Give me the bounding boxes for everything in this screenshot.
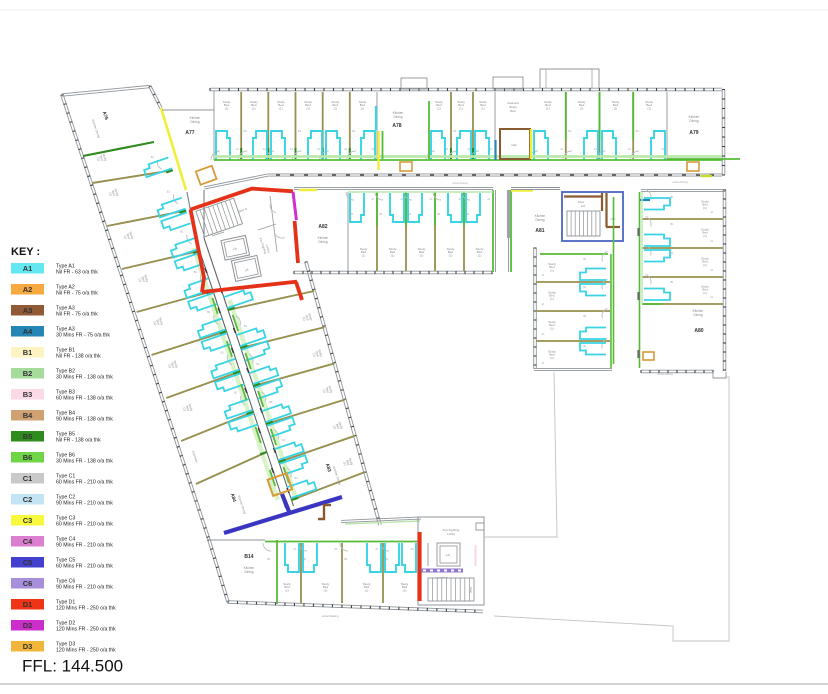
- svg-text:120 Mins FR - 250 o/a thk: 120 Mins FR - 250 o/a thk: [56, 648, 116, 654]
- svg-text:B1: B1: [583, 314, 587, 318]
- svg-text:(1): (1): [580, 106, 584, 110]
- svg-text:B1: B1: [282, 438, 286, 442]
- svg-text:B1: B1: [466, 212, 470, 216]
- svg-text:A4: A4: [23, 327, 33, 336]
- svg-text:B1: B1: [269, 400, 273, 404]
- svg-text:Dining: Dining: [693, 313, 702, 317]
- svg-text:30 Mins FR - 75 o/a thk: 30 Mins FR - 75 o/a thk: [56, 333, 110, 339]
- svg-text:(1): (1): [365, 588, 369, 592]
- svg-text:123: 123: [581, 205, 586, 208]
- svg-text:Lobby: Lobby: [447, 532, 456, 536]
- svg-text:60 Mins FR - 210 o/a thk: 60 Mins FR - 210 o/a thk: [56, 480, 113, 486]
- svg-text:A1: A1: [293, 547, 297, 551]
- svg-text:A80: A80: [694, 328, 703, 334]
- svg-text:B1: B1: [221, 350, 225, 354]
- svg-text:B1: B1: [350, 212, 354, 216]
- svg-text:(1): (1): [324, 588, 328, 592]
- svg-text:Dining: Dining: [393, 115, 402, 119]
- svg-text:B1: B1: [385, 557, 389, 561]
- svg-text:(1): (1): [420, 253, 424, 257]
- svg-text:A1: A1: [710, 239, 714, 243]
- svg-text:A1: A1: [489, 147, 493, 151]
- svg-text:(1): (1): [703, 263, 707, 267]
- svg-text:(1): (1): [225, 106, 229, 110]
- svg-text:A81: A81: [535, 228, 544, 234]
- svg-text:A1: A1: [487, 197, 491, 201]
- svg-text:B1: B1: [636, 129, 640, 133]
- svg-text:B2: B2: [23, 369, 33, 378]
- svg-text:(1): (1): [391, 253, 395, 257]
- svg-text:A1: A1: [410, 547, 414, 551]
- svg-text:A1: A1: [371, 197, 375, 201]
- svg-text:(1): (1): [306, 106, 310, 110]
- svg-text:90 Mins FR - 138 o/a thk: 90 Mins FR - 138 o/a thk: [56, 417, 113, 423]
- svg-text:Dining: Dining: [689, 119, 698, 123]
- svg-text:(1): (1): [252, 106, 256, 110]
- svg-text:constellation: constellation: [436, 576, 449, 579]
- svg-text:(1): (1): [285, 588, 289, 592]
- svg-text:KEY :: KEY :: [11, 246, 40, 258]
- svg-text:Nil FR - 75 o/a thk: Nil FR - 75 o/a thk: [56, 312, 98, 318]
- svg-text:A1: A1: [541, 332, 545, 336]
- svg-text:A1: A1: [263, 147, 267, 151]
- svg-text:(1): (1): [703, 291, 707, 295]
- svg-text:120 Mins FR - 250 o/a thk: 120 Mins FR - 250 o/a thk: [56, 606, 116, 612]
- svg-text:(1): (1): [362, 253, 366, 257]
- svg-text:A1: A1: [375, 547, 379, 551]
- svg-text:(1): (1): [459, 106, 463, 110]
- svg-text:(1): (1): [550, 297, 554, 301]
- svg-text:D1: D1: [23, 600, 33, 609]
- svg-text:(1): (1): [647, 106, 651, 110]
- svg-text:B1: B1: [583, 257, 587, 261]
- svg-text:B1: B1: [257, 362, 261, 366]
- svg-text:Nil FR - 75 o/a thk: Nil FR - 75 o/a thk: [56, 291, 98, 297]
- svg-text:B1: B1: [207, 310, 211, 314]
- svg-text:verbal drawing: verbal drawing: [672, 181, 688, 184]
- svg-text:verbal drawing: verbal drawing: [657, 373, 673, 376]
- svg-text:B1: B1: [234, 391, 238, 395]
- svg-text:60 Mins FR - 210 o/a thk: 60 Mins FR - 210 o/a thk: [56, 564, 113, 570]
- svg-text:A1: A1: [317, 147, 321, 151]
- svg-text:B1: B1: [295, 476, 299, 480]
- svg-text:A1: A1: [541, 302, 545, 306]
- svg-text:60 Mins FR - 138 o/a thk: 60 Mins FR - 138 o/a thk: [56, 396, 113, 402]
- svg-text:90 Mins FR - 210 o/a thk: 90 Mins FR - 210 o/a thk: [56, 501, 113, 507]
- svg-text:B1: B1: [244, 129, 248, 133]
- svg-text:(1): (1): [550, 268, 554, 272]
- svg-text:C3: C3: [23, 516, 33, 525]
- svg-text:(1): (1): [703, 234, 707, 238]
- svg-text:B1: B1: [180, 230, 184, 234]
- svg-text:(1): (1): [478, 253, 482, 257]
- svg-text:B1: B1: [670, 280, 674, 284]
- svg-text:C5: C5: [23, 558, 33, 567]
- svg-text:verbal drawing: verbal drawing: [322, 614, 339, 618]
- svg-text:Dining: Dining: [318, 240, 327, 244]
- svg-text:B1: B1: [23, 348, 33, 357]
- svg-text:B1: B1: [670, 251, 674, 255]
- svg-text:A77: A77: [185, 130, 194, 136]
- svg-text:B1: B1: [408, 212, 412, 216]
- svg-text:A1: A1: [710, 268, 714, 272]
- svg-text:B1: B1: [670, 195, 674, 199]
- svg-text:B6: B6: [23, 453, 33, 462]
- svg-text:30 Mins FR - 138 o/a thk: 30 Mins FR - 138 o/a thk: [56, 375, 113, 381]
- svg-text:Lift: Lift: [446, 553, 450, 557]
- svg-text:B1: B1: [244, 324, 248, 328]
- svg-text:(1): (1): [550, 356, 554, 360]
- svg-text:A1: A1: [290, 147, 294, 151]
- svg-text:B3: B3: [23, 390, 33, 399]
- svg-text:B1: B1: [267, 557, 271, 561]
- svg-text:FFL: 144.500: FFL: 144.500: [22, 657, 123, 676]
- svg-text:A79: A79: [689, 130, 698, 136]
- svg-text:B1: B1: [437, 212, 441, 216]
- svg-text:B1: B1: [379, 212, 383, 216]
- svg-text:90 Mins FR - 210 o/a thk: 90 Mins FR - 210 o/a thk: [56, 585, 113, 591]
- svg-text:A2: A2: [23, 285, 33, 294]
- svg-text:A1: A1: [445, 147, 449, 151]
- svg-text:A1: A1: [560, 147, 564, 151]
- svg-text:(1): (1): [279, 106, 283, 110]
- svg-text:C6: C6: [23, 579, 33, 588]
- svg-text:A1: A1: [23, 264, 33, 273]
- svg-text:Nil FR - 138 o/a thk: Nil FR - 138 o/a thk: [56, 354, 101, 360]
- svg-text:D2: D2: [23, 621, 33, 630]
- svg-text:120 Mins FR - 250 o/a thk: 120 Mins FR - 250 o/a thk: [56, 627, 116, 633]
- svg-text:B1: B1: [303, 557, 307, 561]
- svg-text:C2: C2: [23, 495, 33, 504]
- svg-text:B1: B1: [298, 129, 302, 133]
- svg-text:B1: B1: [453, 129, 457, 133]
- svg-text:A3: A3: [23, 306, 33, 315]
- svg-text:Oak: Oak: [511, 143, 517, 147]
- svg-text:(1): (1): [481, 106, 485, 110]
- svg-text:B1: B1: [583, 344, 587, 348]
- svg-text:A1: A1: [710, 210, 714, 214]
- svg-text:A1: A1: [429, 197, 433, 201]
- svg-text:C4: C4: [23, 537, 33, 546]
- svg-text:B1: B1: [344, 557, 348, 561]
- svg-text:Dining: Dining: [190, 120, 199, 124]
- svg-text:B4: B4: [23, 411, 33, 420]
- svg-text:A1: A1: [344, 147, 348, 151]
- svg-text:B1: B1: [583, 285, 587, 289]
- svg-text:A78: A78: [392, 123, 401, 129]
- svg-text:Dining: Dining: [244, 570, 253, 574]
- svg-text:(1): (1): [333, 106, 337, 110]
- svg-text:30 Mins FR - 138 o/a thk: 30 Mins FR - 138 o/a thk: [56, 459, 113, 465]
- svg-text:A1: A1: [334, 547, 338, 551]
- svg-text:60 Mins FR - 210 o/a thk: 60 Mins FR - 210 o/a thk: [56, 522, 113, 528]
- svg-text:(1): (1): [449, 253, 453, 257]
- svg-text:Nil FR - 63 o/a thk: Nil FR - 63 o/a thk: [56, 270, 98, 276]
- svg-text:A1: A1: [541, 361, 545, 365]
- svg-text:B1: B1: [670, 222, 674, 226]
- svg-text:A82: A82: [318, 224, 327, 230]
- svg-text:(1): (1): [550, 326, 554, 330]
- svg-text:verbal drawing: verbal drawing: [452, 182, 468, 185]
- svg-text:Store: Store: [578, 200, 585, 204]
- svg-text:B1: B1: [568, 129, 572, 133]
- svg-text:(1): (1): [546, 106, 550, 110]
- svg-text:Dining: Dining: [535, 218, 544, 222]
- svg-text:B1: B1: [194, 270, 198, 274]
- svg-text:(1): (1): [361, 106, 365, 110]
- svg-text:A1: A1: [541, 273, 545, 277]
- svg-text:Bed: Bed: [510, 109, 516, 113]
- svg-text:A1: A1: [628, 147, 632, 151]
- svg-text:B1: B1: [167, 189, 171, 193]
- svg-text:B5: B5: [23, 432, 33, 441]
- svg-text:B1: B1: [352, 129, 356, 133]
- svg-text:Riser: Riser: [469, 587, 473, 593]
- svg-text:(1): (1): [437, 106, 441, 110]
- svg-text:C1: C1: [23, 474, 33, 483]
- svg-text:B14: B14: [244, 554, 253, 560]
- svg-text:A1: A1: [710, 295, 714, 299]
- svg-text:Nil FR - 138 o/a thk: Nil FR - 138 o/a thk: [56, 438, 101, 444]
- svg-text:(1): (1): [703, 206, 707, 210]
- svg-text:(1): (1): [403, 588, 407, 592]
- svg-text:90 Mins FR - 210 o/a thk: 90 Mins FR - 210 o/a thk: [56, 543, 113, 549]
- svg-text:D3: D3: [23, 642, 33, 651]
- svg-text:A1: A1: [236, 147, 240, 151]
- svg-text:B1: B1: [151, 155, 155, 159]
- svg-text:(1): (1): [614, 106, 618, 110]
